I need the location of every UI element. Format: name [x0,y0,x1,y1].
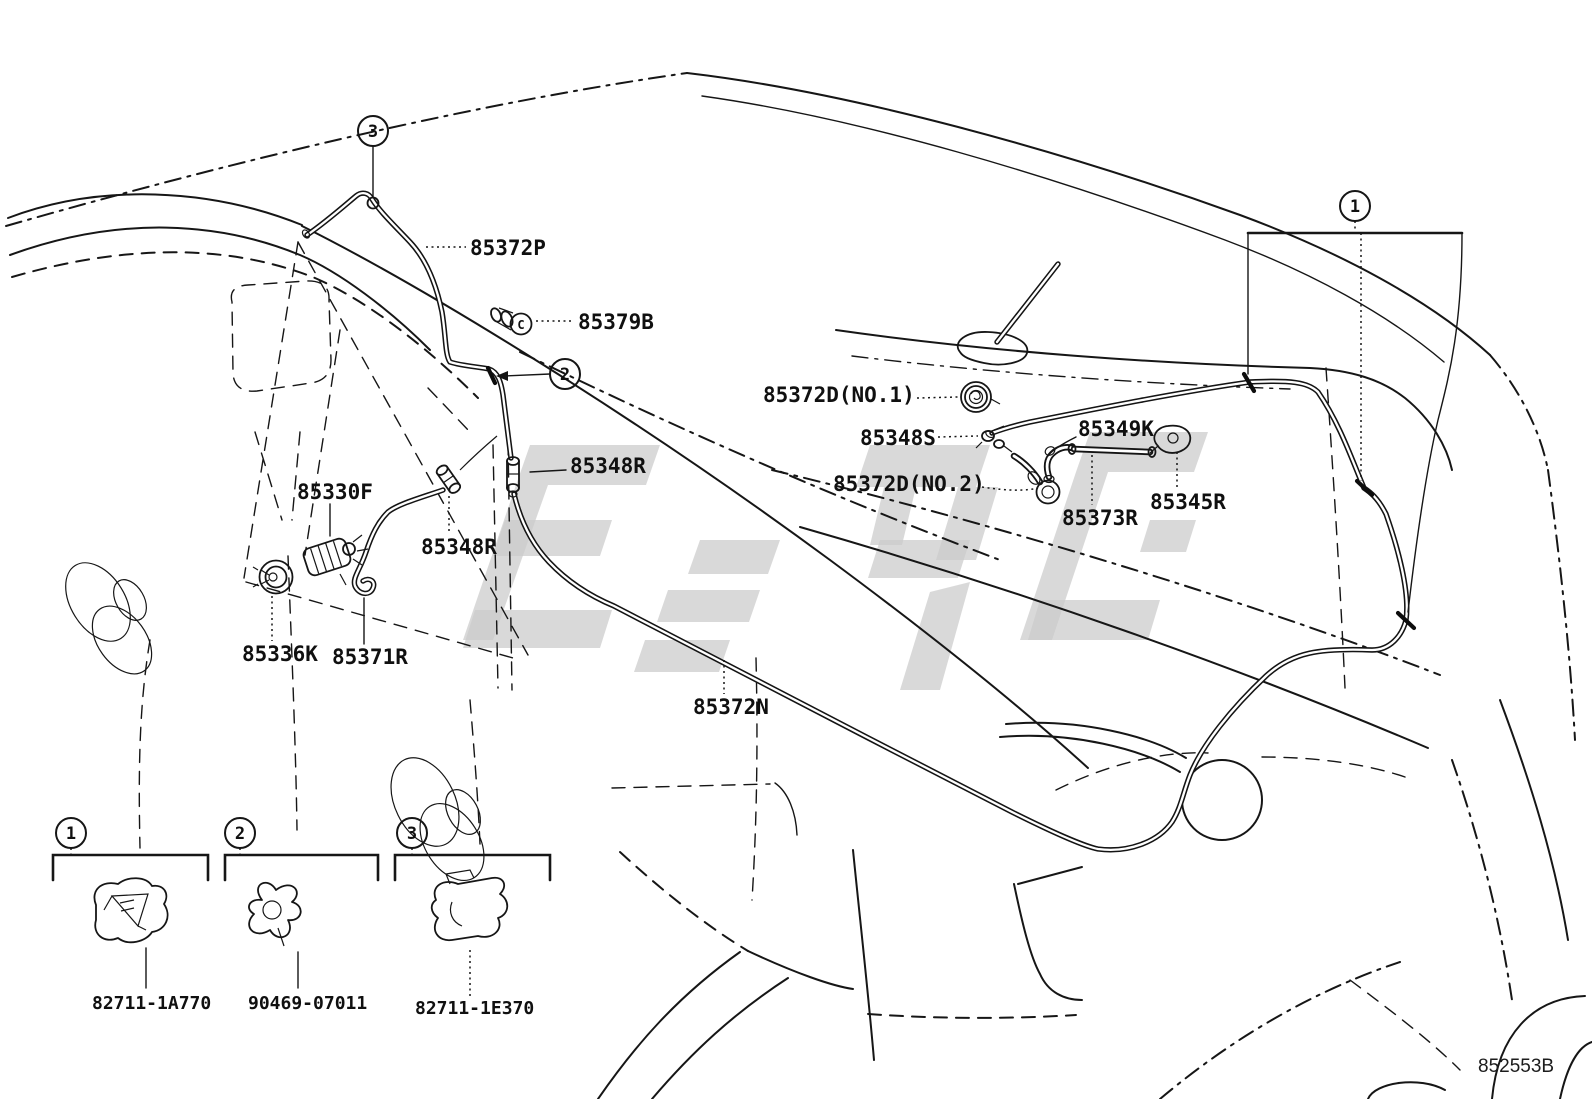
diagram-code: 852553B [1478,1056,1554,1077]
parts-diagram-page: C [0,0,1592,1099]
part-label-85349K: 85349K [1078,417,1154,441]
tube-85372D-no2 [1014,456,1060,504]
legend-part-number-3: 82711-1E370 [415,998,534,1019]
part-label-85348R-a: 85348R [570,454,646,478]
grommet-85379B: C [489,307,531,335]
part-label-85372N: 85372N [693,695,769,719]
part-label-85373R: 85373R [1062,506,1138,530]
grommet-85372D-no1 [961,382,1000,412]
legend-part-number-2: 90469-07011 [248,993,367,1014]
part-label-85348R-b: 85348R [421,535,497,559]
callout-3-number: 3 [368,122,378,142]
legend: 1 82711-1A770 2 90469-07011 [53,818,550,1019]
part-label-85345R: 85345R [1150,490,1226,514]
part-label-85379B: 85379B [578,310,654,334]
legend-callout-1: 1 [66,824,76,844]
clip-glyph-3 [432,870,508,940]
part-label-85372D-no2: 85372D(NO.2) [833,472,985,496]
grommet-c-marker: C [517,318,524,332]
part-label-85330F: 85330F [297,480,373,504]
clip-glyph-2 [249,883,301,946]
car-outline [6,73,1592,1099]
callout-2-number: 2 [560,365,570,385]
clip-glyph-1 [94,878,167,942]
legend-part-number-1: 82711-1A770 [92,993,211,1014]
part-label-85372P: 85372P [470,236,546,260]
part-label-85372D-no1: 85372D(NO.1) [763,383,915,407]
legend-item-2: 2 90469-07011 [225,818,378,1014]
callout-1-number: 1 [1350,197,1360,217]
parts-diagram-canvas: C [0,0,1592,1099]
grommet-85336K [253,561,293,594]
part-label-85336K: 85336K [242,642,318,666]
part-label-85348S: 85348S [860,426,936,450]
legend-item-1: 1 82711-1A770 [53,818,211,1014]
part-label-85371R: 85371R [332,645,408,669]
callout-2: 2 [496,359,580,389]
legend-callout-3: 3 [407,824,417,844]
callout-1: 1 [1248,191,1462,612]
legend-callout-2: 2 [235,824,245,844]
callout-3: 3 [358,116,388,197]
legend-item-3: 3 82711-1E370 [395,818,550,1019]
nozzle-85349K [1044,445,1072,482]
